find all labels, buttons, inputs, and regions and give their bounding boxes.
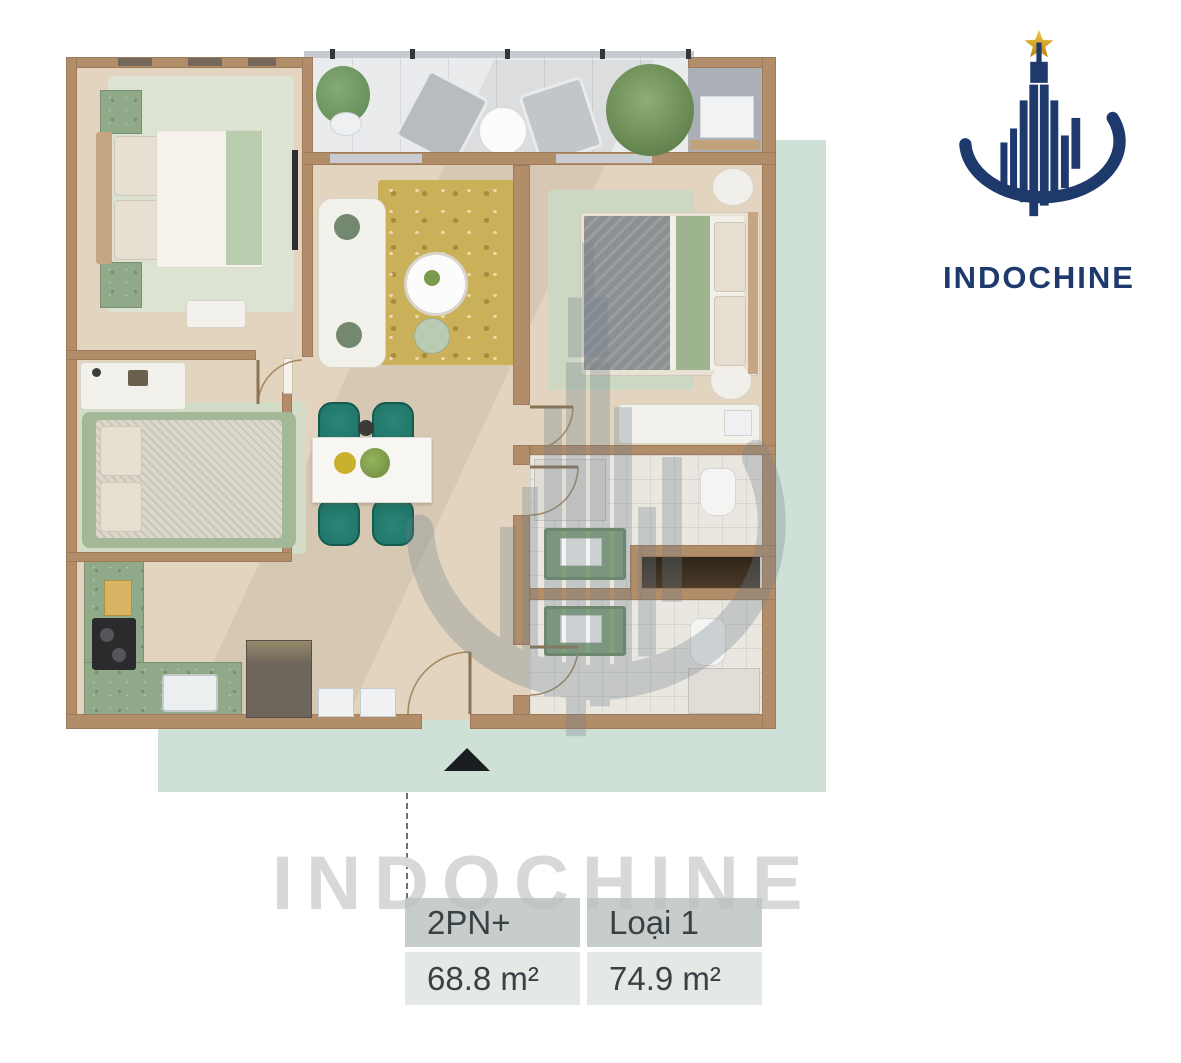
side-pouf <box>414 318 450 354</box>
wall-bedroom1-living <box>302 57 313 357</box>
washing-machine <box>318 688 354 717</box>
bedroom3-door-leaf <box>283 358 293 394</box>
spec-table: 2PN+ Loại 1 68.8 m² 74.9 m² <box>405 898 762 1005</box>
wall-left <box>66 57 77 729</box>
wall-living-bedroom2 <box>513 165 530 405</box>
wall-niche-left <box>630 545 642 600</box>
bed2-pillow-a <box>714 222 746 292</box>
coffee-table-plant <box>424 270 440 286</box>
bed2-green-spread <box>676 216 710 370</box>
swoosh-icon <box>965 43 1119 217</box>
spec-area-1: 68.8 m² <box>405 952 580 1005</box>
sofa-cushion-a <box>334 214 360 240</box>
wall-bedroom2-bottom <box>530 445 776 455</box>
fruit-bowl <box>334 452 356 474</box>
rail-joint-b <box>410 49 415 59</box>
rail-joint-d <box>600 49 605 59</box>
cooktop <box>92 618 136 670</box>
shower-1 <box>534 459 606 521</box>
bed1-pillow-a <box>114 136 158 196</box>
bed2-pouf-top <box>712 168 754 206</box>
wall-corridor-a <box>513 445 530 465</box>
brand-wordmark: INDOCHINE <box>930 260 1148 296</box>
rail-joint-e <box>686 49 691 59</box>
refrigerator <box>246 640 312 718</box>
balcony-tree <box>606 64 694 156</box>
bed3-pillow-a <box>100 426 142 476</box>
table-plant <box>360 448 390 478</box>
dining-chair-3 <box>318 498 360 546</box>
bed1-green-blanket <box>226 131 262 265</box>
brand-logo: INDOCHINE <box>930 26 1148 296</box>
bed2-mini-appliance <box>724 410 752 436</box>
window-bedroom1-c <box>248 58 276 66</box>
cooktop-burner-b <box>112 648 126 662</box>
nightstand-top <box>100 90 142 134</box>
shower-2 <box>688 668 760 714</box>
tech-balcony-shelf <box>690 140 760 150</box>
floor-plan-page: INDOCHINE 2PN+ Loại 1 68.8 m² 74.9 m² IN… <box>0 0 1181 1063</box>
balcony-table <box>478 106 528 156</box>
spec-type-2: Loại 1 <box>587 898 762 947</box>
wall-bathrooms-divider <box>530 588 776 600</box>
spec-area-2: 74.9 m² <box>587 952 762 1005</box>
spec-type-1: 2PN+ <box>405 898 580 947</box>
building-icon <box>944 26 1134 254</box>
sink-1 <box>560 538 602 566</box>
desk-lamp <box>92 368 101 377</box>
rail-joint-a <box>330 49 335 59</box>
toilet-1 <box>700 468 736 516</box>
toilet-2 <box>690 618 726 666</box>
sliding-door-living <box>330 154 422 163</box>
window-bedroom1-b <box>188 58 222 66</box>
sofa-cushion-b <box>336 322 362 348</box>
rail-joint-c <box>505 49 510 59</box>
wall-bottom-right <box>470 714 776 729</box>
sink-2 <box>560 615 602 643</box>
bed2-gray-blanket <box>584 216 670 370</box>
bed3-pillow-b <box>100 482 142 532</box>
floor-lamp <box>358 420 374 436</box>
balcony-rail <box>304 51 694 58</box>
bed1-bench <box>186 300 246 328</box>
storage-niche <box>642 557 760 588</box>
kitchen-sink <box>162 674 218 712</box>
bed1-pillow-b <box>114 200 158 260</box>
wall-corridor-b <box>513 515 530 645</box>
bed2-pillow-b <box>714 296 746 366</box>
dining-chair-4 <box>372 498 414 546</box>
bed2-headboard <box>748 212 758 374</box>
wall-corridor-c <box>513 695 530 715</box>
laundry-cabinet <box>360 688 396 717</box>
wall-niche-top <box>630 545 776 557</box>
entrance-arrow-icon <box>444 748 490 771</box>
balcony-plant-pot <box>330 112 362 136</box>
window-bedroom1-a <box>118 58 152 66</box>
cutting-board <box>104 580 132 616</box>
bedroom1-tv <box>292 150 298 250</box>
wall-kitchen-top <box>66 552 292 562</box>
desk-monitor <box>128 370 148 386</box>
wall-bedroom1-bottom <box>66 350 256 360</box>
ac-unit <box>700 96 754 138</box>
cooktop-burner-a <box>100 628 114 642</box>
bed1-headboard <box>96 132 112 264</box>
nightstand-bottom <box>100 262 142 308</box>
sliding-door-bedroom2 <box>556 154 652 163</box>
